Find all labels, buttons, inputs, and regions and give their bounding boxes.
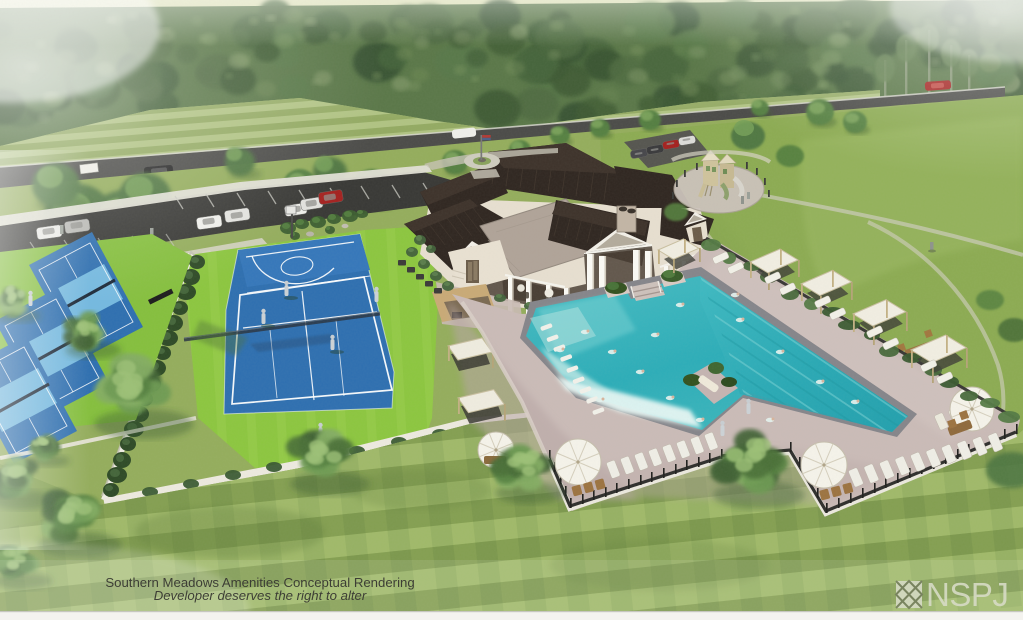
svg-text:Developer deserves the right t: Developer deserves the right to alter: [154, 588, 367, 603]
svg-text:NSPJ: NSPJ: [926, 576, 1008, 613]
